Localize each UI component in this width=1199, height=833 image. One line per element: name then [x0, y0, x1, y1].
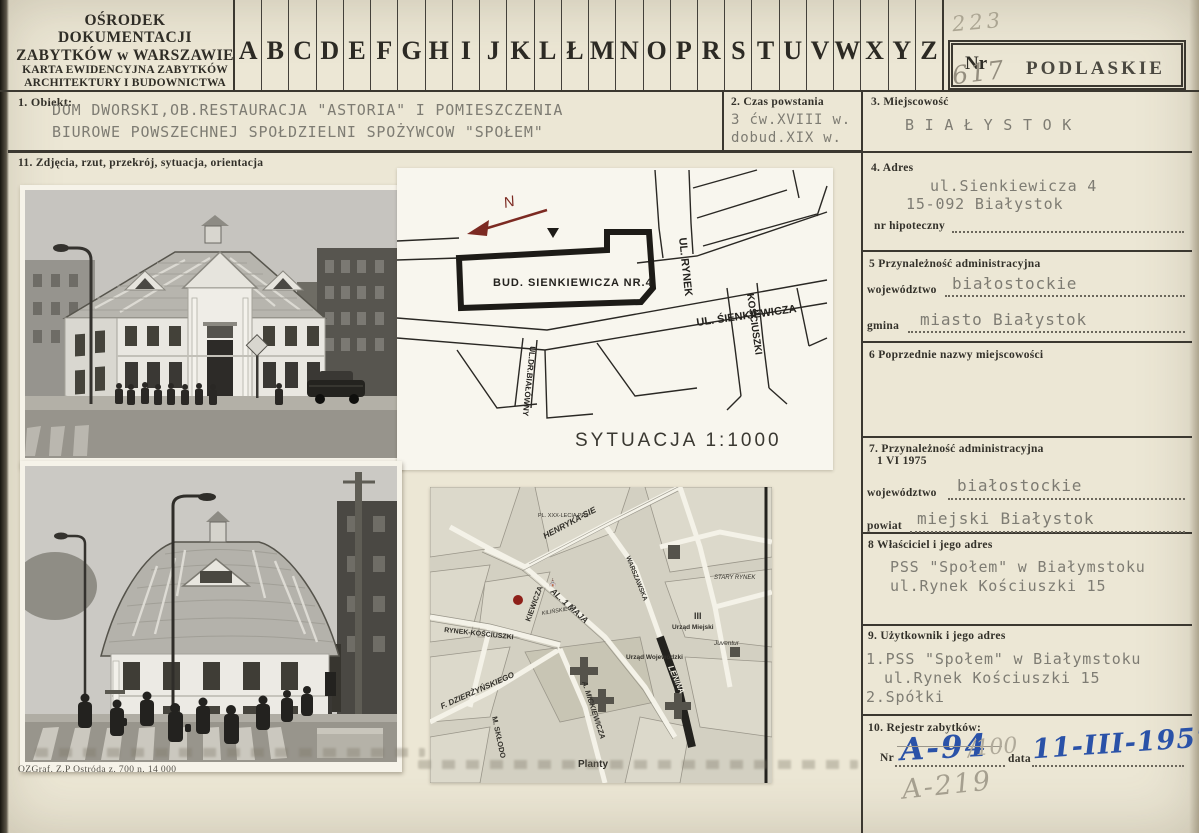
printer-imprint: OZGraf. Z.P Ostróda z. 700 n. 14 000 [18, 765, 176, 775]
s5-label: 5 Przynależność administracyjna [869, 258, 1041, 270]
letter-cell: B [262, 0, 289, 90]
s2-label: 2. Czas powstania [731, 96, 824, 108]
letter-cell: Z [916, 0, 942, 90]
s7-field2-line [910, 530, 1185, 533]
s3-label: 3. Miejscowość [871, 96, 949, 108]
map-label-stary-rynek: STARY RYNEK [714, 575, 756, 581]
rule-below-s8 [861, 624, 1192, 626]
s9-user-line3: 2.Spółki [866, 688, 945, 706]
letter-cell: K [507, 0, 534, 90]
fanlight [207, 326, 233, 338]
letter-cell: U [780, 0, 807, 90]
map-label-urzad-miejski: Urząd Miejski [672, 624, 714, 631]
letter-cell: S [725, 0, 752, 90]
s8-label: 8 Właściciel i jego adres [868, 539, 993, 551]
photo-corner-view-image [25, 190, 397, 458]
header-rule [0, 90, 1199, 92]
divider-main-right [861, 90, 863, 833]
street-lamp-head [198, 493, 216, 501]
crosswalk-stripes [25, 425, 89, 456]
traffic-light [325, 672, 336, 696]
s10-date-line [1032, 764, 1184, 767]
divider-s1-s2 [722, 90, 724, 153]
s3-town-value: B I A Ł Y S T O K [905, 116, 1072, 134]
site-plan-caption: SYTUACJA 1:1000 [575, 430, 782, 451]
letter-cell: C [289, 0, 316, 90]
photo-side-view-image [25, 466, 397, 762]
letter-cell: W [834, 0, 861, 90]
s5-field2-label: gmina [867, 320, 899, 332]
letter-cell: A [235, 0, 262, 90]
building-plan-label: BUD. SIENKIEWICZA NR.4 [493, 277, 653, 289]
s5-voivodeship-value: białostockie [952, 274, 1077, 293]
s7-district-value: miejski Białystok [917, 509, 1094, 528]
utility-pole [355, 472, 362, 750]
photo-side-view [20, 461, 402, 772]
map-label-urzad-wojewodzki: Urząd Wojewódzki [626, 654, 683, 661]
s4-label: 4. Adres [871, 162, 913, 174]
side-balcony [105, 690, 125, 694]
letter-cell: M [589, 0, 616, 90]
s7-label2: 1 VI 1975 [877, 455, 927, 467]
s9-user-line2: ul.Rynek Kościuszki 15 [884, 669, 1100, 687]
voivodeship-stamp: PODLASKIE [1013, 58, 1178, 80]
street-lamp-head [53, 244, 69, 252]
letter-cell: L [535, 0, 562, 90]
letter-cell: I [453, 0, 480, 90]
column-right [243, 298, 248, 402]
concrete-box-top [317, 728, 383, 734]
s8-owner-line2: ul.Rynek Kościuszki 15 [890, 577, 1106, 595]
s10-register-date: 11-III-1957 [1031, 722, 1199, 766]
rule-below-s5 [861, 341, 1192, 343]
s8-owner-line1: PSS "Społem" w Białymstoku [890, 558, 1146, 576]
letter-cell: P [671, 0, 698, 90]
rule-below-s1 [8, 150, 862, 153]
alphabet-index-strip: A B C D E F G H I J K L Ł M N O P R S T … [233, 0, 944, 90]
s7-field2-label: powiat [867, 520, 902, 532]
letter-cell: N [616, 0, 643, 90]
s7-label: 7. Przynależność administracyjna [869, 443, 1044, 455]
site-plan: N [397, 168, 833, 470]
rule-below-s3 [861, 151, 1192, 153]
s2-date-line2: dobud.XIX w. [731, 130, 842, 146]
photo-corner-view [20, 185, 402, 468]
letter-cell: R [698, 0, 725, 90]
org-line3: KARTA EWIDENCYJNA ZABYTKÓW [16, 64, 234, 77]
s7-field1-label: województwo [867, 487, 937, 499]
s7-voivodeship-value: białostockie [957, 476, 1082, 495]
org-line4: ARCHITEKTURY I BUDOWNICTWA [16, 77, 234, 90]
letter-cell: T [752, 0, 779, 90]
map-label-roman-iii: III [694, 611, 702, 621]
map-label-pl-xxx: PL. XXX-LECIA PRL [538, 513, 588, 519]
s10-pencil-note: A-219 [901, 765, 994, 805]
s5-field2-line [908, 330, 1185, 333]
rule-below-s6 [861, 436, 1192, 438]
s9-label: 9. Użytkownik i jego adres [868, 630, 1006, 642]
s1-object-line2: BIUROWE POWSZECHNEJ SPOŁDZIELNI SPOŻYWCO… [52, 123, 544, 141]
letter-cell: F [371, 0, 398, 90]
letter-cell: H [426, 0, 453, 90]
s5-field1-label: województwo [867, 284, 937, 296]
letter-cell: D [317, 0, 344, 90]
letter-cell: Y [889, 0, 916, 90]
rule-below-s9 [861, 714, 1192, 716]
org-line1: OŚRODEK DOKUMENTACJI [16, 12, 234, 47]
s9-user-line1: 1.PSS "Społem" w Białymstoku [866, 650, 1141, 668]
s10-date-label: data [1008, 753, 1031, 765]
offset-ghost-text-2 [418, 760, 858, 769]
scan-edge-right [1189, 0, 1199, 833]
s6-label: 6 Poprzednie nazwy miejscowości [869, 349, 1043, 361]
scan-edge-left [0, 0, 9, 833]
rule-below-s4 [861, 250, 1192, 252]
s4-address-line2: 15-092 Białystok [906, 195, 1063, 213]
s4-address-line1: ul.Sienkiewicza 4 [930, 177, 1097, 195]
s11-label: 11. Zdjęcia, rzut, przekrój, sytuacja, o… [18, 157, 263, 169]
letter-cell: E [344, 0, 371, 90]
s4-mortgage-label: nr hipoteczny [874, 220, 945, 232]
s7-field1-line [948, 497, 1185, 500]
balcony [203, 322, 237, 326]
s1-object-line1: DOM DWORSKI,OB.RESTAURACJA "ASTORIA" I P… [52, 101, 563, 119]
s5-field1-line [945, 294, 1185, 297]
site-plan-drawing: N [397, 168, 833, 470]
letter-cell: J [480, 0, 507, 90]
street-lamp-2-head [54, 533, 68, 540]
cupola [205, 226, 221, 243]
dormer-window [200, 571, 232, 583]
city-map: ⛪ HENRYKA-SIE AL. 1 MAJA RYNEK-KOŚCIUSZK… [430, 487, 772, 783]
letter-cell: Ł [562, 0, 589, 90]
org-header: OŚRODEK DOKUMENTACJI ZABYTKÓW w WARSZAWI… [16, 12, 234, 90]
s2-date-line1: 3 ćw.XVIII w. [731, 112, 851, 128]
location-marker-dot [513, 595, 523, 605]
s4-mortgage-line [952, 230, 1184, 233]
s10-nr-label: Nr [880, 752, 894, 764]
letter-cell: G [398, 0, 425, 90]
card-number-pencil-old: 223 [951, 8, 1005, 36]
letter-cell: X [861, 0, 888, 90]
map-label-juventur: Juventur [713, 640, 740, 647]
offset-ghost-text-1 [35, 748, 425, 757]
city-map-image: ⛪ HENRYKA-SIE AL. 1 MAJA RYNEK-KOŚCIUSZK… [430, 487, 772, 783]
heritage-card-page: OŚRODEK DOKUMENTACJI ZABYTKÓW w WARSZAWI… [0, 0, 1199, 833]
org-line2: ZABYTKÓW w WARSZAWIE [16, 47, 234, 64]
letter-cell: O [644, 0, 671, 90]
background-building-right [337, 501, 397, 721]
cupola [210, 522, 226, 542]
s5-commune-value: miasto Białystok [920, 310, 1087, 329]
letter-cell: V [807, 0, 834, 90]
